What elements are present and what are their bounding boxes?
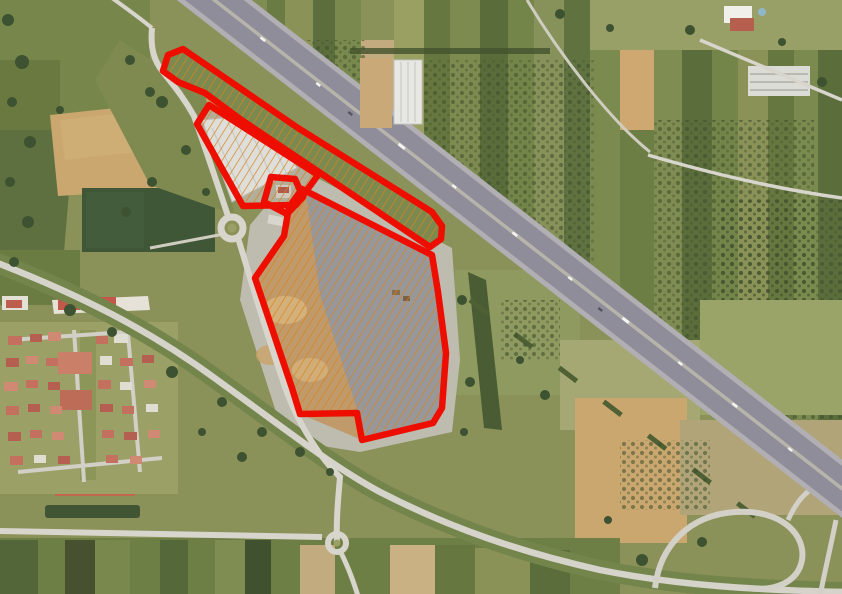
satellite-map-viewport[interactable] (0, 0, 842, 594)
dirt-yard (360, 58, 392, 128)
satellite-map (0, 0, 842, 594)
